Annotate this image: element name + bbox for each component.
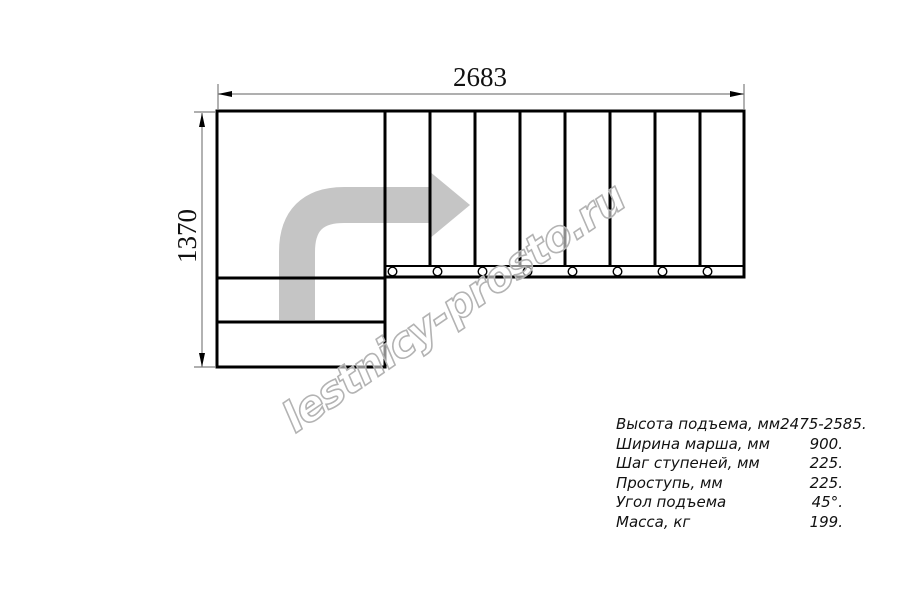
spec-value: 2475-2585. [780, 415, 867, 435]
spec-label: Проступь, мм [616, 474, 723, 494]
mount-circle [568, 267, 577, 276]
height-dimension-label: 1370 [172, 209, 202, 263]
mount-circle [703, 267, 712, 276]
spec-row-flight-width: Ширина марша, мм 900. [616, 435, 843, 455]
spec-row-height: Высота подъема, мм 2475-2585. [616, 415, 843, 435]
mount-circle [388, 267, 397, 276]
spec-row-mass: Масса, кг 199. [616, 513, 843, 533]
spec-value: 199. [810, 513, 843, 533]
spec-row-tread: Проступь, мм 225. [616, 474, 843, 494]
staircase-drawing-page: 2683 1370 lestnicy-prosto.ru Высота подъ… [0, 0, 900, 600]
spec-label: Масса, кг [616, 513, 690, 533]
spec-value: 900. [810, 435, 843, 455]
arrowhead-up [199, 113, 205, 127]
spec-value: 225. [810, 454, 843, 474]
mount-circle [613, 267, 622, 276]
spec-value: 45°. [812, 493, 843, 513]
specs-table: Высота подъема, мм 2475-2585. Ширина мар… [616, 415, 843, 532]
arrowhead-right [730, 91, 744, 97]
arrowhead-down [199, 353, 205, 367]
mount-circle [658, 267, 667, 276]
spec-label: Шаг ступеней, мм [616, 454, 760, 474]
spec-label: Ширина марша, мм [616, 435, 770, 455]
mount-circle [433, 267, 442, 276]
dimension-arrowheads [199, 91, 744, 367]
width-dimension-label: 2683 [453, 62, 507, 92]
spec-label: Угол подъема [616, 493, 726, 513]
spec-row-angle: Угол подъема 45°. [616, 493, 843, 513]
spec-value: 225. [810, 474, 843, 494]
arrowhead-left [218, 91, 232, 97]
spec-row-step-rise: Шаг ступеней, мм 225. [616, 454, 843, 474]
spec-label: Высота подъема, мм [616, 415, 780, 435]
